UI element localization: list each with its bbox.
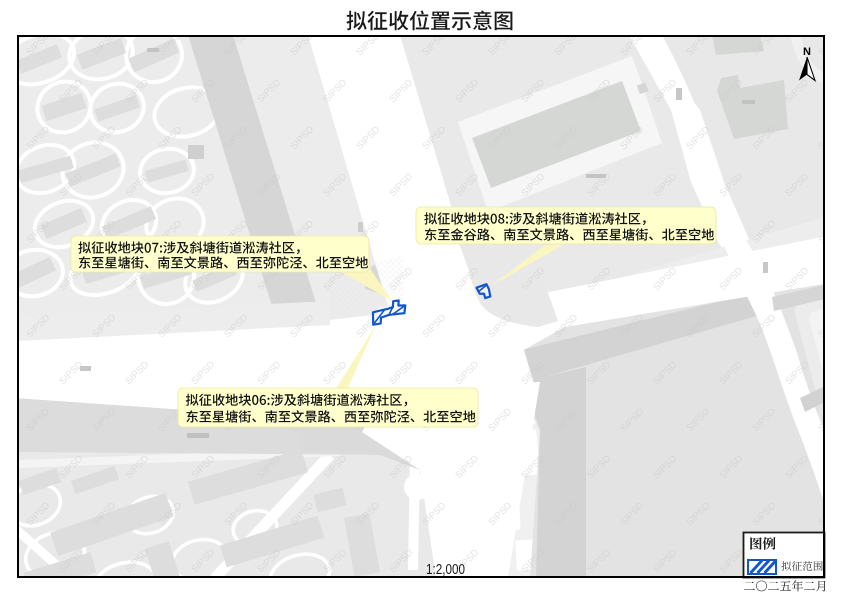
svg-text:N: N: [803, 46, 811, 58]
svg-text:1:2,000: 1:2,000: [426, 562, 465, 578]
